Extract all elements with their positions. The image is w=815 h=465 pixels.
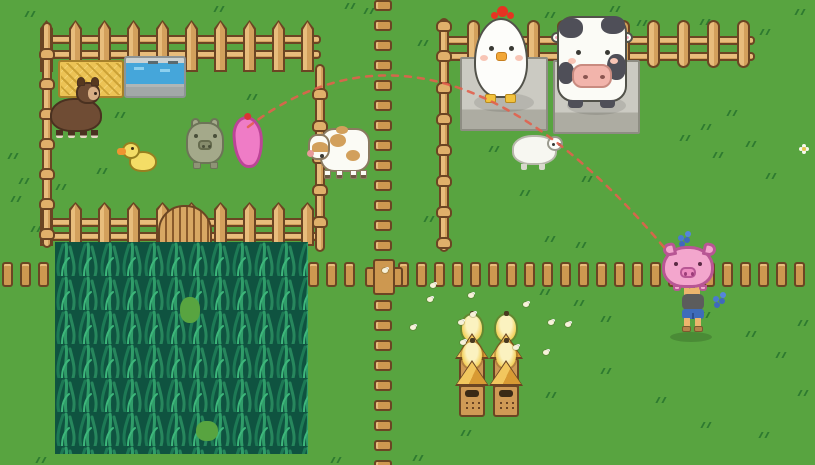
fence-post [707,20,720,68]
fence-plank [374,140,392,151]
fence-knob [39,228,55,240]
fence-knob [436,50,452,62]
cow-head-patch [312,142,328,152]
bee [460,340,466,345]
grass-tuft [798,320,810,328]
alpaca-ear [91,77,99,86]
grass-tuft [331,457,343,465]
fence-plank [374,160,392,171]
fence-knob [436,20,452,32]
grass-tuft [701,124,713,132]
blue-flower [677,233,691,245]
fence-knob [312,184,328,196]
pig-eye [674,262,678,266]
fence-plank [2,262,13,287]
fence-plank [374,20,392,31]
fence-plank [374,380,392,391]
sheep-head [547,136,563,151]
grass-tuft [115,112,127,120]
cow-patch [559,18,583,38]
alpaca-face [88,87,99,100]
fence-picket [272,202,285,246]
grass-tuft [776,352,788,360]
grass-tuft [540,289,552,297]
fence-picket [301,20,314,72]
hive-vents [500,402,502,404]
chicken-cheek [515,55,523,61]
grass-tuft [601,368,613,376]
cow-leg [350,170,357,179]
grass-tuft [574,300,586,308]
dairy-cow[interactable] [557,14,629,108]
fence-post [677,20,690,68]
fence-plank [740,262,751,287]
cow-eye [605,50,610,55]
fence-plank [344,262,355,287]
fence-knob [436,82,452,94]
chicken-eye [509,46,514,51]
pig-ear [702,242,717,257]
grass-tuft [424,216,436,224]
fence-knob [39,48,55,60]
cow-nose [307,150,314,157]
pig-eye [213,134,217,138]
grass-tuft [701,422,713,430]
sheep-leg [521,164,527,170]
chicken-comb [497,6,508,17]
hive-roof [489,360,523,386]
cow-patch [336,126,348,134]
fence-plank [524,262,535,287]
brown-cow[interactable] [308,126,372,184]
grass-tuft [798,390,810,398]
fence-plank [374,220,392,231]
cow-leg [568,100,583,108]
fence-plank [578,262,589,287]
fence-plank [374,180,392,191]
fence-plank [374,420,392,431]
player-character[interactable] [660,246,716,342]
alpaca[interactable] [50,82,108,138]
bee [543,350,549,355]
cow-leg [600,100,615,108]
grass-tuft [746,141,758,149]
pig-snout [198,140,212,150]
grass-tuft [489,146,501,154]
fence-post [647,20,660,68]
grass-tuft [610,6,622,14]
fence-plank [632,262,643,287]
alpaca-body [50,98,102,132]
fence-knob [436,144,452,156]
grass-tuft [345,3,357,11]
grass-tuft [413,455,425,463]
character-shadow [670,332,712,342]
bee [565,322,571,327]
player-sandal [694,326,703,332]
chicken-foot [505,94,516,103]
grass-tuft [656,397,668,405]
fence-plank [488,262,499,287]
sheep[interactable] [512,132,564,170]
pig-eye [698,262,702,266]
corn-field[interactable] [55,242,308,454]
fence-plank [758,262,769,287]
water-trough[interactable] [124,56,186,98]
fence-picket [185,20,198,72]
hive-entrance [465,390,479,397]
fence-knob [436,113,452,125]
grass-tuft [11,196,23,204]
grass-tuft [795,9,807,17]
cow-eye [320,154,324,158]
pig-leg [210,162,218,169]
fence-plank [374,300,392,311]
cow-leg [336,170,343,179]
pig-landing-marker [231,115,265,169]
pig-leg [193,162,201,169]
fence-knob [312,88,328,100]
fence-knob [312,216,328,228]
fence-plank [794,262,805,287]
grass-tuft [520,190,532,198]
fence-plank [434,262,445,287]
fence-plank [506,262,517,287]
bee [468,293,474,298]
alpaca-ear [77,77,85,86]
fence-plank [374,400,392,411]
fence-plank [374,200,392,211]
alpaca-leg [91,130,98,138]
beehive[interactable] [489,342,523,418]
bee [430,283,436,288]
fence-knob [436,175,452,187]
fence-plank [776,262,787,287]
white-flower [799,144,809,154]
marker-dot [244,113,251,120]
sheep-leg [539,164,545,170]
pig-trotter [673,285,681,291]
bee [458,320,464,325]
fence-plank [416,262,427,287]
fence-plank [374,120,392,131]
hive-roof [455,360,489,386]
fence-picket [214,202,227,246]
pig-ear [662,242,677,257]
hive-vents [466,402,468,404]
fence-plank [374,0,392,11]
cow-patch [601,16,625,34]
fence-picket [243,202,256,246]
grass-tuft [418,40,430,48]
fence-plank [374,320,392,331]
chicken-cheek [480,55,488,61]
fence-plank [722,262,733,287]
bee [548,320,554,325]
fence-plank [374,460,392,465]
duckling[interactable] [122,142,158,174]
fence-plank [374,100,392,111]
fence-post [737,20,750,68]
fence-plank [374,240,392,251]
grass-tuft [760,29,772,37]
cow-cheek [610,58,618,64]
fence-plank [374,440,392,451]
fence-picket [127,202,140,246]
grass-tuft [56,184,68,192]
grass-tuft [601,316,613,324]
fence-plank [374,340,392,351]
cow-muzzle [572,64,612,88]
alpaca-leg [56,130,63,138]
fence-knob [39,138,55,150]
fence-plank [374,60,392,71]
corn-gap [180,297,200,323]
duck-beak [117,148,126,155]
fence-picket [214,20,227,72]
grass-tuft [546,392,558,400]
grass-tuft [713,152,725,160]
bee [382,268,388,273]
bee [470,312,476,317]
grass-tuft [766,173,778,181]
fence-plank [374,40,392,51]
grass-tuft [36,457,48,465]
fence-plank [308,262,319,287]
grass-tuft [461,430,473,438]
cow-patch [346,150,360,161]
grass-tuft [680,135,692,143]
fence-plank [542,262,553,287]
alpaca-leg [68,130,75,138]
bee [427,297,433,302]
grass-tuft [582,176,594,184]
fence-plank [452,262,463,287]
fence-junction [365,259,399,291]
fence-plank [374,360,392,371]
pig-trotter [699,285,707,291]
fence-knob [436,237,452,249]
cow-cheek [568,58,576,64]
fence-plank [374,80,392,91]
fence-plank [20,262,31,287]
grass-tuft [214,6,226,14]
fence-plank [38,262,49,287]
held-pig[interactable] [662,246,714,288]
fence-picket [98,202,111,246]
pig-eye [194,134,198,138]
bee [410,325,416,330]
grass-tuft [97,168,109,176]
grass-tuft [19,178,31,186]
alpaca-leg [80,130,87,138]
grass-tuft [8,153,20,161]
player-sandal [682,326,691,332]
grass-tuft [727,110,739,118]
fence-plank [326,262,337,287]
beehive[interactable] [455,342,489,418]
grass-tuft [746,331,758,339]
fence-plank [596,262,607,287]
grass-tuft [25,11,37,19]
bee [523,302,529,307]
grass-tuft [247,94,259,102]
cow-eye [576,50,581,55]
grass-tuft [759,432,771,440]
hive-box [493,385,519,417]
fence-knob [436,206,452,218]
green-pig[interactable] [186,118,226,172]
cow-leg [324,170,331,179]
duck-eye [131,147,134,150]
bee [513,345,519,350]
chicken-foot [485,94,496,103]
corn-gap [196,421,218,441]
hive-entrance [499,390,513,397]
fence-knob [39,198,55,210]
chicken[interactable] [474,6,530,108]
fence-picket [69,202,82,246]
pig-snout [680,267,696,278]
cow-leg [360,170,367,179]
farm-scene [0,0,815,465]
grass-tuft [545,12,557,20]
fence-knob [39,168,55,180]
fence-plank [560,262,571,287]
fence-plank [614,262,625,287]
hive-box [459,385,485,417]
chicken-beak [496,52,507,61]
grass-tuft [576,242,588,250]
cow-patch [330,134,346,147]
fence-picket [272,20,285,72]
fence-picket [243,20,256,72]
grass-tuft [545,236,557,244]
fence-plank [470,262,481,287]
chicken-eye [489,46,494,51]
corn-rows-overlay [63,256,308,454]
player-shirt [682,294,704,310]
